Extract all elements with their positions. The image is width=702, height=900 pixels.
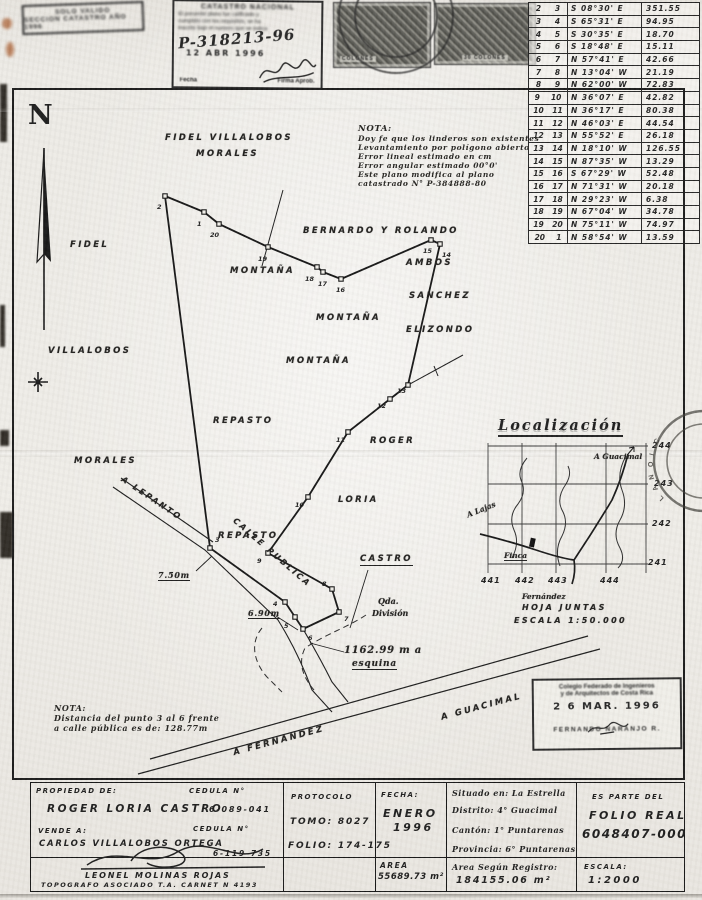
area-registro-value: 184155.06 m² (456, 875, 551, 886)
folio-real-cell: ES PARTE DEL FOLIO REAL 6048407-000 ESCA… (576, 783, 684, 891)
note-line: Doy fe que los linderos son existentes (358, 134, 539, 143)
location-map-title: Localización (498, 417, 623, 437)
grid-coordinate: 443 (548, 576, 568, 585)
location-cell: Situado en: La Estrella Distrito: 4° Gua… (446, 783, 577, 891)
vertex-marker (202, 210, 206, 214)
distance-annotation: 1162.99 m a (344, 645, 422, 656)
river-line (557, 466, 569, 566)
neighbor-label: CASTRO (360, 554, 413, 566)
map-place-label: Fernández (522, 592, 566, 601)
cfia-org-line2: y de Arquitectos de Costa Rica (534, 689, 680, 698)
neighbor-label: MORALES (196, 149, 259, 159)
survey-note: NOTA: Doy fe que los linderos son existe… (358, 124, 539, 188)
leader-line (196, 556, 212, 571)
vertex-number: 15 (423, 247, 433, 255)
tomo-value: TOMO: 8027 (290, 817, 370, 827)
note-title: NOTA: (358, 124, 539, 134)
vertex-number: 12 (377, 402, 387, 410)
vertex-number: 20 (210, 231, 220, 239)
vertex-number: 17 (318, 280, 328, 288)
vertex-marker (283, 600, 287, 604)
cfia-approval-stamp: Colegio Federado de Ingenieros y de Arqu… (532, 677, 683, 751)
map-scale-label: ESCALA 1:50.000 (514, 616, 627, 625)
distance-annotation: esquina (352, 659, 397, 670)
vertex-marker (337, 610, 341, 614)
vertex-number: 18 (305, 275, 315, 283)
propiedad-label: PROPIEDAD DE: (36, 787, 117, 795)
vertex-marker (429, 238, 433, 242)
canton-value: Cantón: 1° Puntarenas (452, 825, 564, 835)
vertex-number: 19 (258, 255, 268, 263)
vertex-number: 7 (344, 615, 349, 623)
grid-coordinate: 441 (481, 576, 501, 585)
vertex-number: 5 (284, 622, 289, 630)
cfia-date: 2 6 MAR. 1996 (534, 700, 680, 713)
surveyor-name: LEONEL MOLINAS ROJAS (85, 871, 231, 880)
vertex-marker (330, 587, 334, 591)
quebrada-line (255, 628, 282, 692)
grid-coordinate: 444 (600, 576, 620, 585)
finca-label: Finca (504, 551, 527, 561)
folio-real-label: FOLIO REAL (589, 809, 687, 822)
frontage-note: NOTA: Distancia del punto 3 al 6 frente … (54, 703, 219, 733)
vertex-marker (293, 615, 297, 619)
vertex-number: 4 (273, 600, 278, 608)
cedula-label: CEDULA N° (193, 825, 250, 833)
protocolo-cell: PROTOCOLO TOMO: 8027 FOLIO: 174-175 (283, 783, 376, 891)
grid-coordinate: 442 (515, 576, 535, 585)
fecha-year: 1996 (393, 821, 434, 834)
neighbor-label: BERNARDO Y ROLANDO (303, 226, 459, 236)
owner-name: ROGER LORIA CASTRO (47, 803, 223, 815)
map-destination-label: A Guacimal (594, 452, 642, 461)
vertex-marker (301, 627, 305, 631)
neighbor-label: ROGER (370, 436, 415, 446)
neighbor-label: SANCHEZ (409, 291, 471, 301)
finca-marker (529, 538, 536, 548)
owner-cedula: 6-089-041 (209, 805, 271, 814)
svg-text:N: N (648, 474, 656, 481)
area-label: AREA (380, 861, 409, 870)
note-line: Distancia del punto 3 al 6 frente (54, 713, 219, 723)
map-sheet-label: HOJA JUNTAS (522, 603, 607, 612)
note-line: Error angular estimado 00°0' (358, 161, 539, 170)
cfia-signatory-name: FERNANDO NARANJO R. (534, 725, 680, 734)
grid-coordinate: 241 (648, 558, 668, 567)
vertex-marker (315, 265, 319, 269)
neighbor-label: AMBOS (406, 258, 453, 268)
neighbor-label: MORALES (74, 456, 137, 466)
note-line: a calle pública es de: 128.77m (54, 723, 219, 733)
note-line: Levantamiento por polígono abierto (358, 143, 539, 152)
width-annotation: 6.90m (248, 608, 280, 619)
landuse-label: MONTAÑA (230, 266, 295, 276)
cedula-label: CEDULA N° (189, 787, 246, 795)
vende-label: VENDE A: (38, 827, 87, 835)
neighbor-label: LORIA (338, 495, 379, 505)
area-value: 55689.73 m² (378, 872, 444, 882)
vertex-marker (388, 397, 392, 401)
width-annotation: 7.50m (158, 570, 190, 581)
location-map (478, 438, 663, 593)
vertex-number: 9 (257, 557, 262, 565)
svg-text:L: L (657, 493, 665, 501)
situado-value: Situado en: La Estrella (452, 788, 566, 798)
fecha-month: ENERO (383, 807, 438, 820)
fecha-area-cell: FECHA: ENERO 1996 AREA 55689.73 m² (375, 783, 447, 891)
neighbor-label: FIDEL VILLALOBOS (165, 133, 293, 143)
neighbor-label: ELIZONDO (406, 325, 474, 335)
protocolo-label: PROTOCOLO (291, 793, 353, 801)
note-line: Error lineal estimado en cm (358, 152, 539, 161)
area-registro-label: Area Según Registro: (452, 862, 557, 872)
vertex-number: 13 (397, 387, 407, 395)
vertex-marker (266, 245, 270, 249)
leader-line (350, 570, 368, 628)
note-line: catastrado N° P-384888-80 (358, 179, 539, 188)
vertex-marker (438, 242, 442, 246)
vertex-number: 2 (157, 203, 162, 211)
vertex-marker (163, 194, 167, 198)
folio-real-number: 6048407-000 (582, 827, 687, 841)
vertex-marker (217, 222, 221, 226)
vertex-number: 8 (322, 580, 327, 588)
svg-text:O: O (648, 461, 655, 467)
quebrada-label: División (372, 608, 408, 618)
quebrada-label: Qda. (378, 596, 399, 606)
provincia-value: Provincia: 6° Puntarenas (452, 844, 576, 854)
es-parte-label: ES PARTE DEL (592, 793, 664, 801)
vertex-number: 16 (336, 286, 346, 294)
vertex-marker (346, 430, 350, 434)
vertex-marker (321, 270, 325, 274)
landuse-label: REPASTO (213, 416, 273, 426)
scanned-survey-plat: { "stamps": { "box1": {"line1": "SOLO VA… (0, 0, 702, 900)
vertex-number: 11 (336, 436, 345, 444)
note-title: NOTA: (54, 703, 219, 713)
note-line: Este plano modifica al plano (358, 170, 539, 179)
surveyor-signature-icon (79, 839, 269, 873)
neighbor-label: VILLALOBOS (48, 346, 131, 356)
fecha-label: FECHA: (381, 791, 419, 799)
owner-cell: PROPIEDAD DE: CEDULA N° ROGER LORIA CAST… (31, 783, 284, 891)
road-line (574, 454, 628, 560)
escala-label: ESCALA: (584, 863, 628, 871)
river-line (616, 456, 626, 568)
vertex-marker (208, 546, 212, 550)
title-block: PROPIEDAD DE: CEDULA N° ROGER LORIA CAST… (30, 782, 685, 892)
vertex-number: 10 (295, 501, 305, 509)
svg-text:A: A (652, 484, 661, 492)
distrito-value: Distrito: 4° Guacimal (452, 805, 557, 815)
landuse-label: MONTAÑA (286, 356, 351, 366)
vertex-number: 6 (308, 634, 313, 642)
landuse-label: MONTAÑA (316, 313, 381, 323)
escala-value: 1:2000 (588, 875, 642, 886)
vertex-number: 1 (197, 220, 202, 228)
neighbor-label: FIDEL (70, 240, 109, 250)
road-edge (113, 487, 332, 712)
vertex-marker (406, 383, 410, 387)
college-seal-icon: C I O N A L (642, 403, 702, 523)
vertex-marker (306, 495, 310, 499)
vertex-marker (339, 277, 343, 281)
surveyor-title: TOPOGRAFO ASOCIADO T.A. CARNET N 4193 (41, 881, 258, 889)
